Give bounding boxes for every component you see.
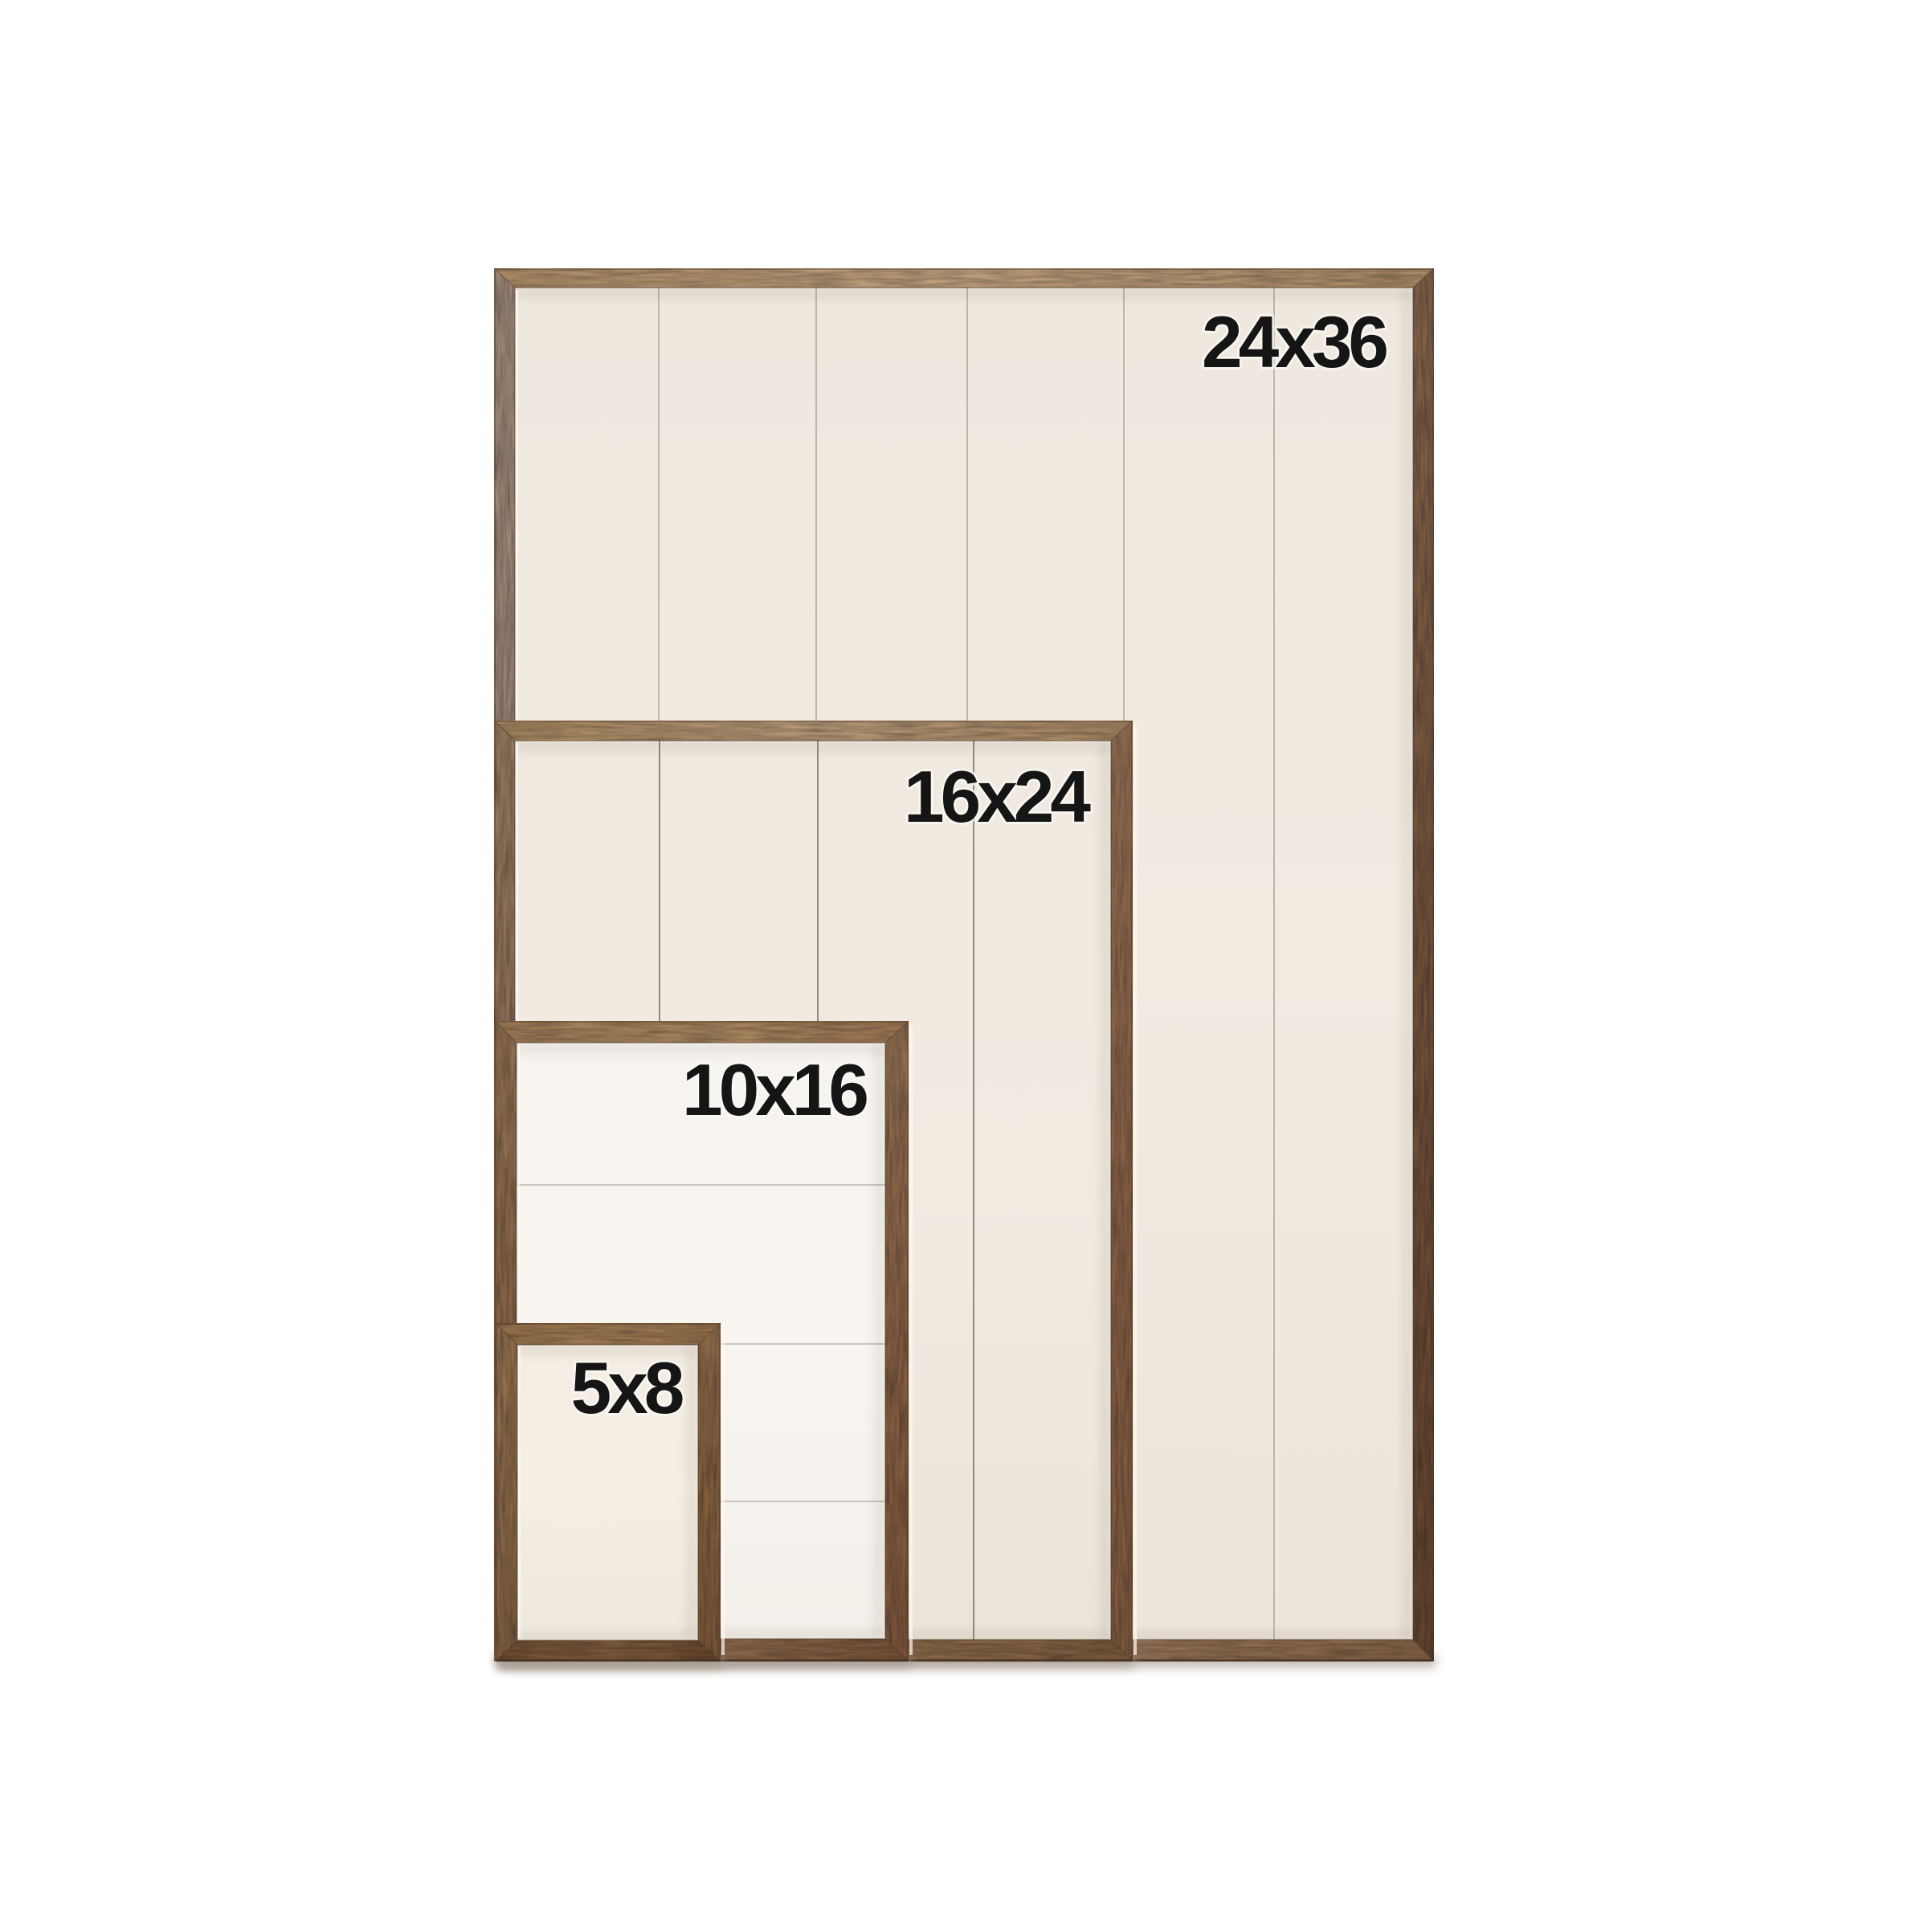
- svg-text:24x36: 24x36: [1202, 302, 1387, 383]
- svg-text:5x8: 5x8: [571, 1348, 683, 1429]
- svg-text:10x16: 10x16: [682, 1050, 867, 1131]
- svg-text:16x24: 16x24: [904, 757, 1091, 838]
